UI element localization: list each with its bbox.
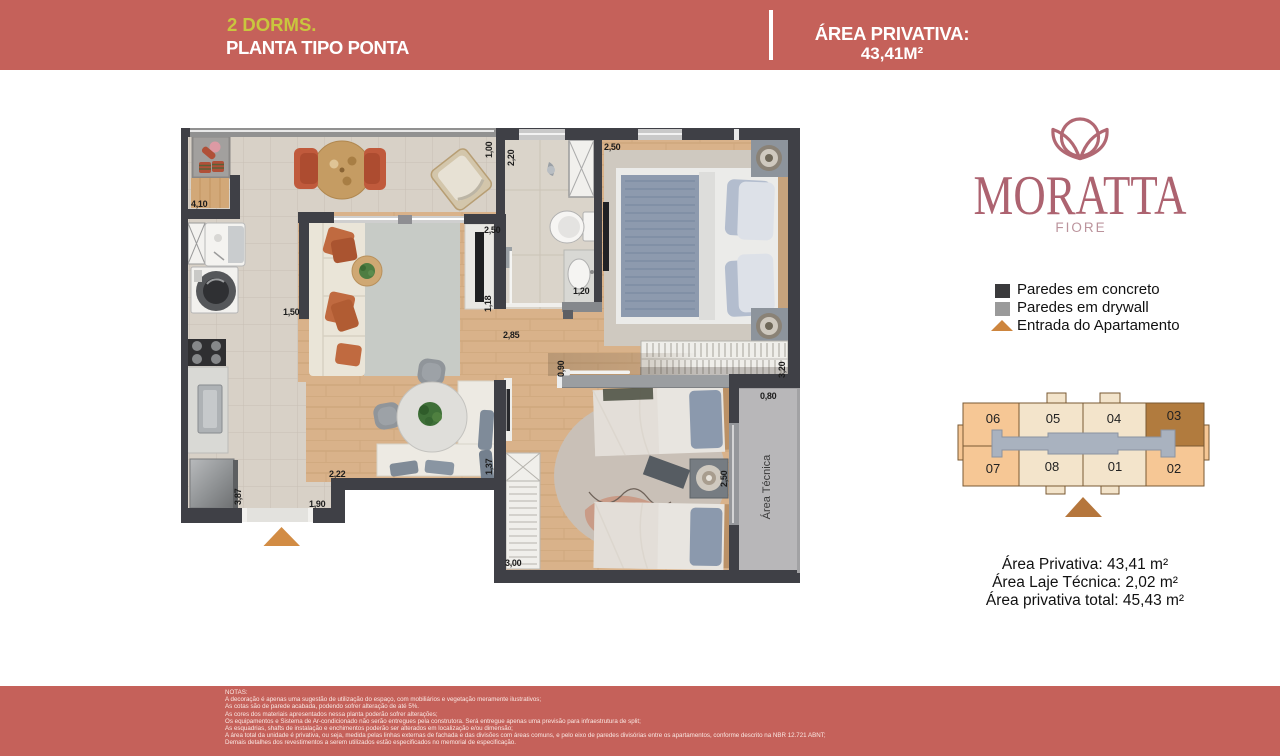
- svg-text:1,90: 1,90: [309, 499, 326, 509]
- svg-text:1,00: 1,00: [484, 141, 494, 158]
- svg-text:2,22: 2,22: [329, 469, 346, 479]
- svg-text:3,87: 3,87: [233, 488, 243, 505]
- svg-text:4,10: 4,10: [191, 199, 208, 209]
- svg-text:1,37: 1,37: [484, 458, 494, 475]
- svg-text:0,90: 0,90: [556, 360, 566, 377]
- svg-text:2,50: 2,50: [604, 142, 621, 152]
- svg-text:1,18: 1,18: [483, 295, 493, 312]
- svg-text:Área Técnica: Área Técnica: [760, 454, 773, 519]
- svg-text:2,50: 2,50: [719, 470, 729, 487]
- svg-text:1,20: 1,20: [573, 286, 590, 296]
- svg-text:06: 06: [986, 411, 1000, 426]
- svg-text:0,80: 0,80: [760, 391, 777, 401]
- svg-text:07: 07: [986, 461, 1000, 476]
- svg-text:2,20: 2,20: [506, 149, 516, 166]
- svg-text:04: 04: [1107, 411, 1121, 426]
- svg-text:1,50: 1,50: [283, 307, 300, 317]
- svg-text:3,00: 3,00: [505, 558, 522, 568]
- svg-text:2,50: 2,50: [484, 225, 501, 235]
- svg-text:02: 02: [1167, 461, 1181, 476]
- svg-text:03: 03: [1167, 408, 1181, 423]
- svg-text:2,85: 2,85: [503, 330, 520, 340]
- svg-text:01: 01: [1108, 459, 1122, 474]
- svg-text:05: 05: [1046, 411, 1060, 426]
- svg-text:08: 08: [1045, 459, 1059, 474]
- svg-text:3,20: 3,20: [777, 361, 787, 378]
